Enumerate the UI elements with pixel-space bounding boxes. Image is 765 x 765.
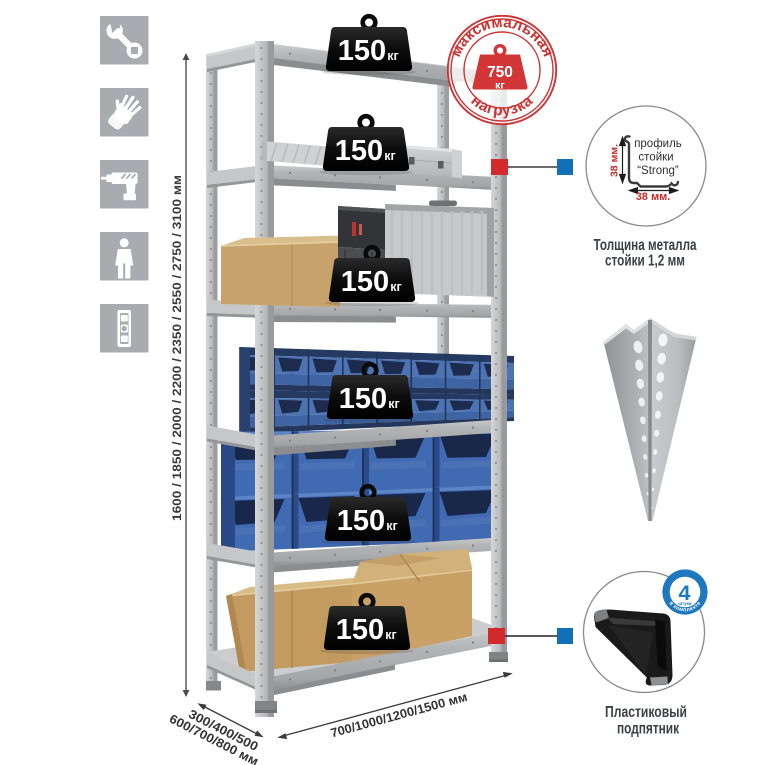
svg-text:150: 150 (339, 383, 387, 415)
svg-text:кг: кг (387, 49, 398, 63)
svg-text:Пластиковый: Пластиковый (605, 704, 687, 721)
svg-text:150: 150 (337, 505, 385, 537)
svg-text:750: 750 (487, 64, 513, 81)
svg-text:1600 / 1850 / 2000 / 2200 / 23: 1600 / 1850 / 2000 / 2200 / 2350 / 2550 … (170, 175, 184, 521)
svg-text:Толщина металла: Толщина металла (594, 237, 697, 254)
svg-text:кг: кг (390, 280, 401, 294)
svg-text:38 мм.: 38 мм. (636, 191, 671, 203)
svg-text:стойки 1,2 мм: стойки 1,2 мм (605, 253, 685, 270)
svg-text:кг: кг (384, 149, 395, 163)
svg-text:700/1000/1200/1500 мм: 700/1000/1200/1500 мм (329, 690, 469, 740)
svg-text:стойки: стойки (638, 152, 673, 164)
svg-text:подпятник: подпятник (617, 721, 680, 738)
svg-text:“Strong”: “Strong” (637, 165, 679, 177)
svg-text:кг: кг (385, 628, 396, 642)
svg-text:150: 150 (335, 135, 383, 167)
svg-text:профиль: профиль (634, 138, 682, 150)
svg-text:кг: кг (386, 519, 397, 533)
svg-text:150: 150 (338, 35, 386, 67)
svg-text:кг: кг (388, 397, 399, 411)
svg-text:кг: кг (495, 80, 505, 92)
svg-text:38 мм.: 38 мм. (609, 144, 621, 177)
svg-text:штуки: штуки (678, 601, 692, 606)
svg-text:150: 150 (336, 614, 384, 646)
svg-text:150: 150 (341, 266, 389, 298)
